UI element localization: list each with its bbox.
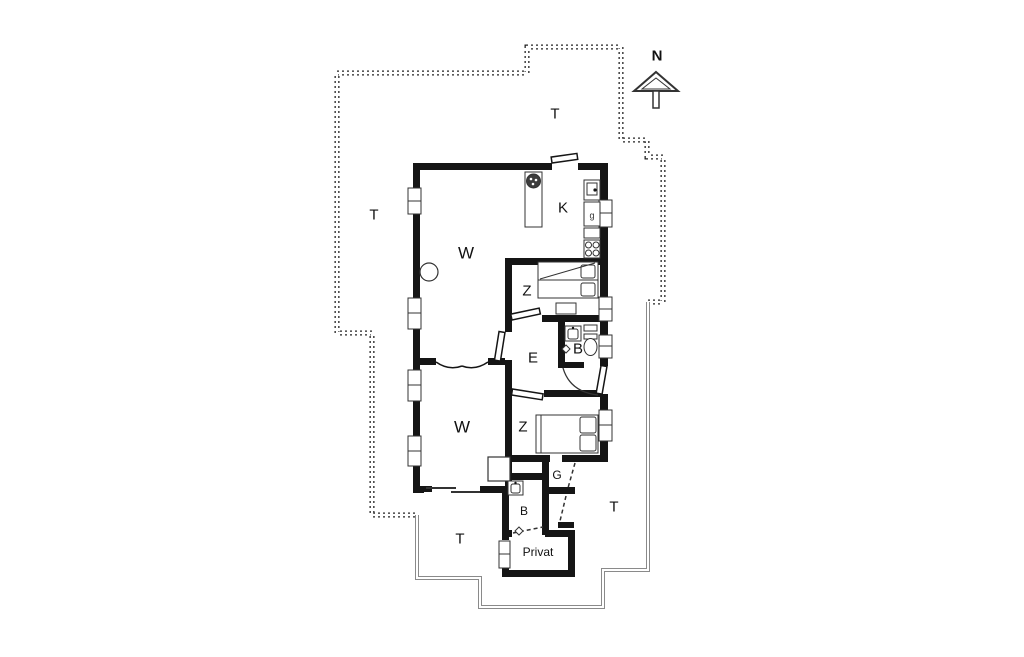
counter-segment: [584, 228, 600, 238]
wall-privat-right: [568, 530, 575, 577]
window: [599, 200, 612, 227]
wall-left-2: [413, 214, 420, 298]
label-private-room: Privat: [523, 546, 554, 558]
window: [408, 298, 421, 329]
wall-top-left: [413, 163, 552, 170]
wall-living-divider-1: [413, 358, 436, 365]
window: [408, 188, 421, 214]
island-sink-dot: [535, 179, 538, 182]
stove-burner: [593, 242, 599, 248]
label-terrace-bottom: T: [455, 532, 464, 547]
closet: [488, 457, 510, 481]
label-terrace-left: T: [369, 208, 378, 223]
wall-right-1: [600, 163, 608, 200]
nightstand: [556, 303, 576, 314]
label-hall: G: [552, 469, 561, 481]
sink-tap: [514, 482, 516, 484]
stove-burner: [593, 250, 599, 256]
sink-basin: [568, 329, 578, 339]
wall-privat-bottom: [502, 570, 575, 577]
sink-tap: [572, 327, 574, 329]
counter-sink-tap: [593, 188, 596, 191]
label-fridge: g: [589, 212, 594, 221]
wall-right-3: [600, 321, 608, 335]
window: [599, 297, 612, 321]
wall-right-5: [600, 394, 608, 410]
window: [408, 436, 421, 466]
window: [599, 410, 612, 441]
pillow: [580, 435, 596, 451]
pillow: [581, 283, 595, 296]
wall-privat-top-1: [502, 530, 512, 537]
stove-burner: [586, 242, 592, 248]
island-sink-dot: [532, 183, 535, 186]
label-bedroom-lower: Z: [518, 420, 527, 435]
label-terrace-top: T: [550, 107, 559, 122]
stove-burner: [586, 250, 592, 256]
island-sink-icon: [527, 174, 541, 188]
label-kitchen: K: [558, 201, 568, 216]
window: [499, 541, 510, 568]
wall-bedroom-upper-2: [542, 315, 600, 322]
label-entry: E: [528, 351, 538, 366]
label-living-upper: W: [458, 245, 474, 262]
window: [599, 335, 612, 358]
label-bath-lower: B: [520, 505, 528, 517]
label-bedroom-upper: Z: [522, 284, 531, 299]
door-leaf-top: [551, 153, 578, 163]
window: [408, 370, 421, 401]
wall-annex-vertical: [542, 462, 549, 535]
label-bath-upper: B: [573, 342, 583, 357]
wall-entry-bottom-1: [505, 390, 512, 397]
island-sink-dot: [530, 178, 533, 181]
sink-basin: [511, 484, 520, 493]
compass-north-arrow: [634, 72, 678, 108]
wall-left-4: [413, 401, 420, 436]
label-terrace-right: T: [609, 500, 618, 515]
wall-bath-upper-v: [558, 322, 565, 368]
wall-bath-upper-h: [558, 362, 584, 368]
wall-right-2: [600, 227, 608, 297]
wall-bottom-right-2: [562, 455, 608, 462]
toilet-icon: [584, 339, 597, 356]
round-table: [420, 263, 438, 281]
bedroom-lower-fixtures: [536, 415, 598, 453]
north-arrow-stem: [653, 91, 659, 108]
shelf: [584, 325, 597, 331]
wall-hall-bottom: [542, 487, 575, 494]
floor-plan-drawing: [0, 0, 1024, 657]
floor-plan-canvas: N T T T T W K Z E B W Z G B Privat g: [0, 0, 1024, 657]
label-living-lower: W: [454, 419, 470, 436]
wall-porch-stub: [558, 522, 574, 528]
pillow: [580, 417, 596, 433]
wall-left-1: [413, 163, 420, 188]
compass-label: N: [652, 49, 663, 64]
wall-bottom-left-1: [413, 486, 424, 493]
